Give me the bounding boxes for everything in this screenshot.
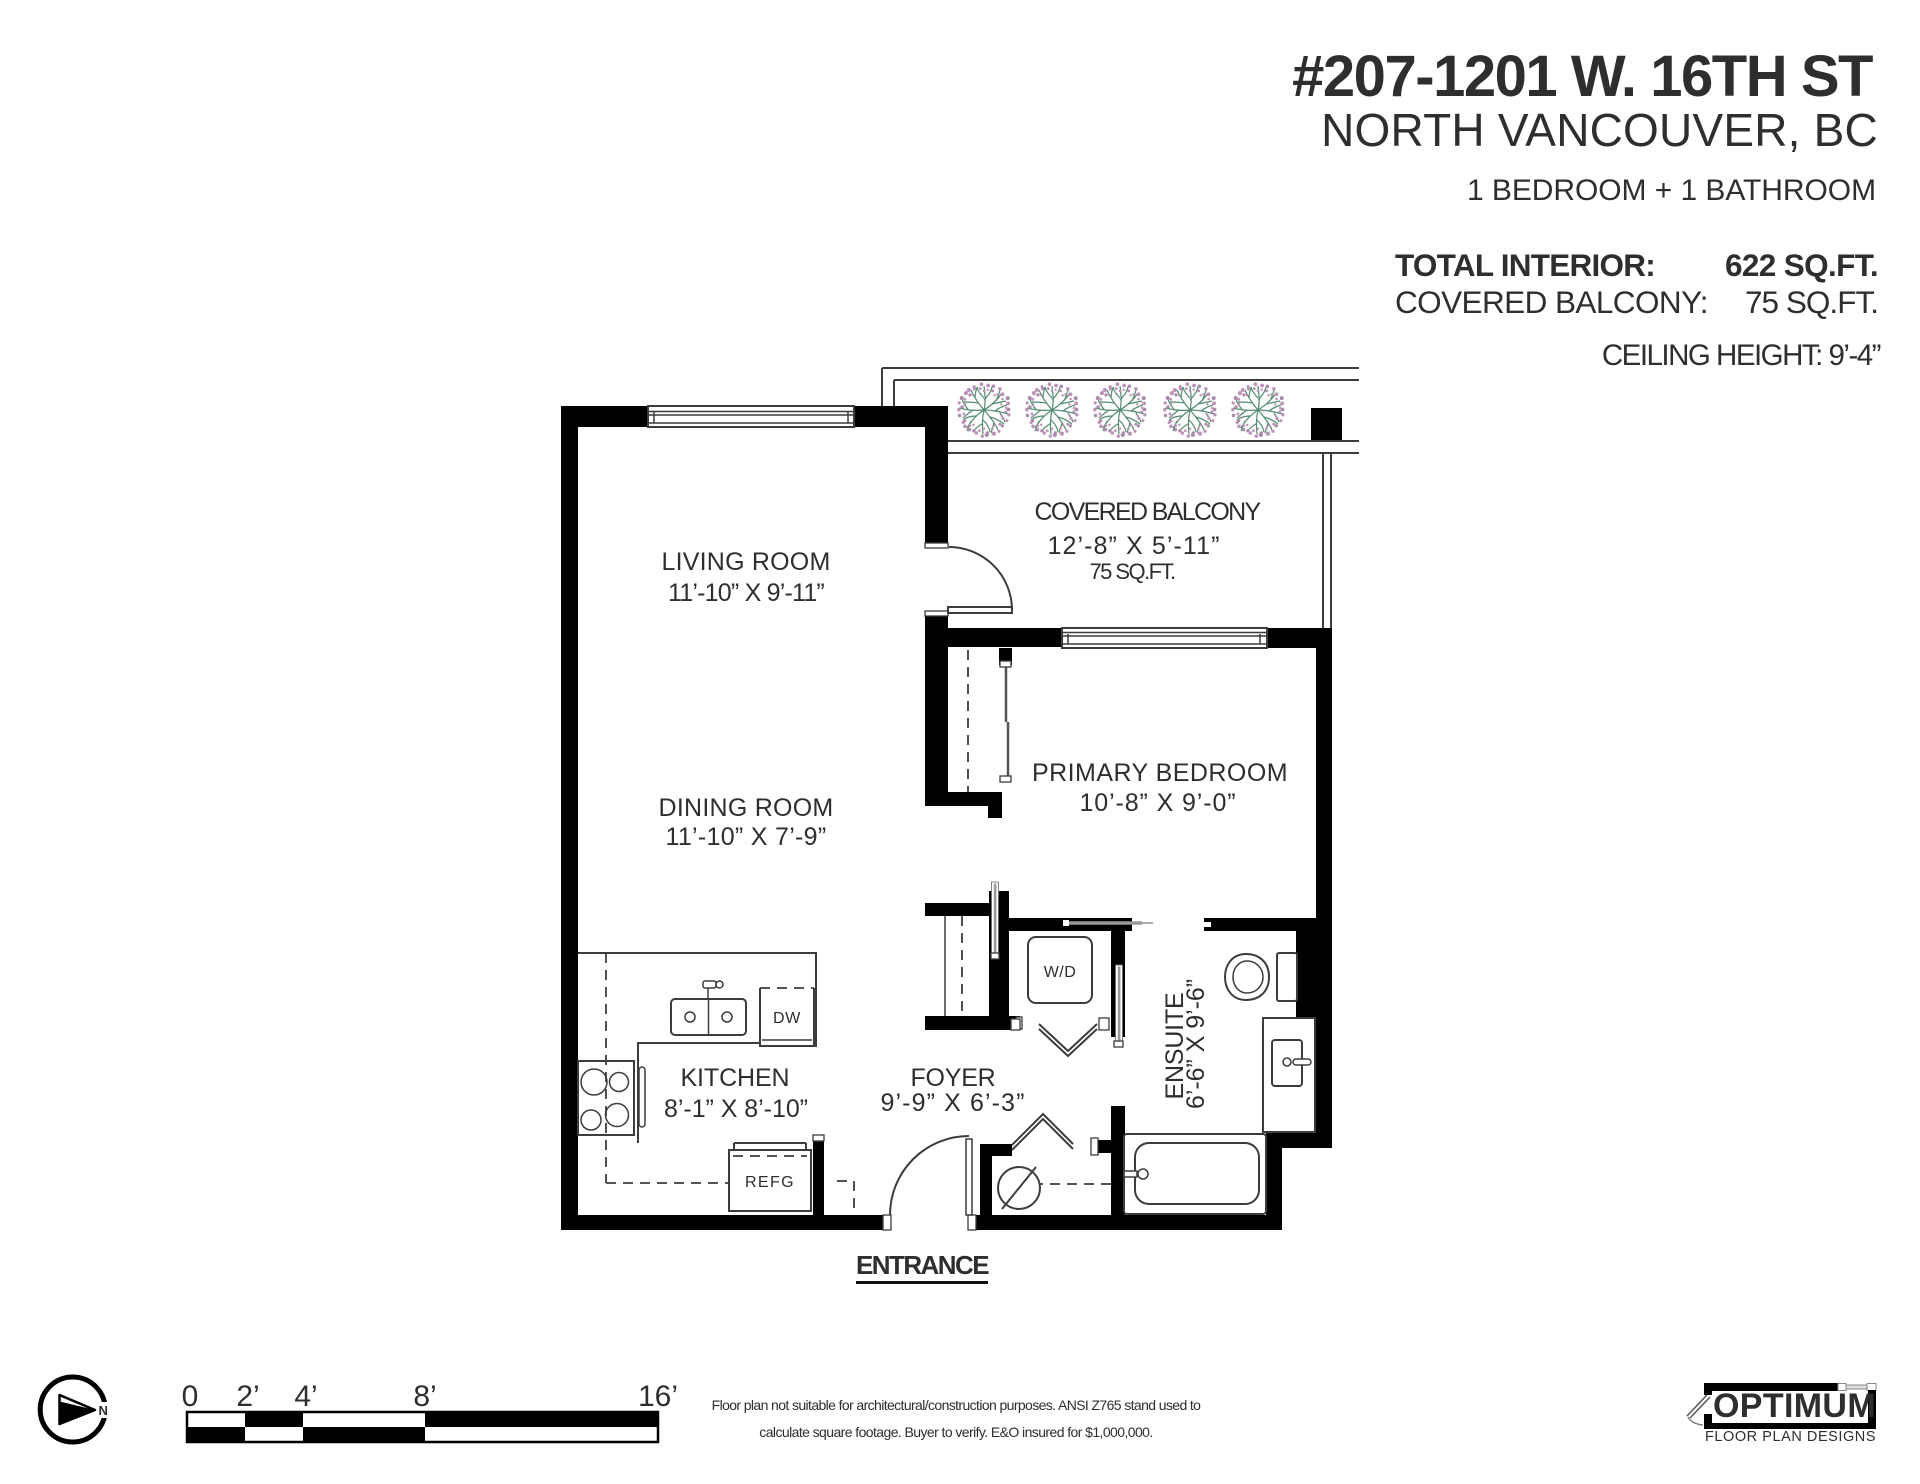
svg-text:#207-1201 W. 16TH ST: #207-1201 W. 16TH ST <box>1292 44 1873 109</box>
svg-text:8’: 8’ <box>413 1380 436 1413</box>
svg-text:KITCHEN: KITCHEN <box>680 1064 789 1092</box>
svg-text:2’: 2’ <box>236 1380 259 1413</box>
svg-text:N: N <box>99 1403 108 1418</box>
svg-text:ENTRANCE: ENTRANCE <box>856 1250 989 1280</box>
svg-text:DINING ROOM: DINING ROOM <box>659 794 834 822</box>
svg-text:LIVING ROOM: LIVING ROOM <box>662 548 831 576</box>
svg-text:DW: DW <box>773 1010 801 1027</box>
svg-text:FLOOR PLAN DESIGNS: FLOOR PLAN DESIGNS <box>1705 1429 1876 1445</box>
svg-text:calculate square footage. Buye: calculate square footage. Buyer to verif… <box>759 1424 1152 1440</box>
svg-text:16’: 16’ <box>638 1380 678 1413</box>
svg-text:11’-10” X 9’-11”: 11’-10” X 9’-11” <box>668 579 824 607</box>
svg-text:PRIMARY BEDROOM: PRIMARY BEDROOM <box>1032 759 1288 787</box>
svg-text:Floor plan not suitable for ar: Floor plan not suitable for architectura… <box>712 1397 1202 1413</box>
svg-text:0: 0 <box>182 1380 199 1413</box>
svg-text:4’: 4’ <box>294 1380 317 1413</box>
svg-text:75 SQ.FT.: 75 SQ.FT. <box>1745 284 1878 320</box>
svg-text:75 SQ.FT.: 75 SQ.FT. <box>1090 559 1175 584</box>
svg-text:1 BEDROOM + 1 BATHROOM: 1 BEDROOM + 1 BATHROOM <box>1467 174 1876 207</box>
svg-text:CEILING HEIGHT: 9’-4”: CEILING HEIGHT: 9’-4” <box>1602 339 1881 372</box>
svg-text:12’-8” X 5’-11”: 12’-8” X 5’-11” <box>1047 532 1220 560</box>
svg-text:6’-6” X 9’-6”: 6’-6” X 9’-6” <box>1182 979 1210 1109</box>
svg-text:FOYER: FOYER <box>910 1064 995 1092</box>
svg-text:8’-1” X 8’-10”: 8’-1” X 8’-10” <box>664 1095 808 1123</box>
svg-text:REFG: REFG <box>745 1174 795 1191</box>
svg-text:OPTIMUM: OPTIMUM <box>1713 1387 1876 1425</box>
svg-text:622 SQ.FT.: 622 SQ.FT. <box>1725 247 1878 283</box>
svg-text:COVERED BALCONY:: COVERED BALCONY: <box>1395 284 1708 320</box>
svg-text:11’-10” X 7’-9”: 11’-10” X 7’-9” <box>665 823 826 851</box>
svg-text:9’-9” X 6’-3”: 9’-9” X 6’-3” <box>880 1089 1025 1117</box>
svg-text:TOTAL INTERIOR:: TOTAL INTERIOR: <box>1395 247 1655 283</box>
svg-text:W/D: W/D <box>1044 964 1077 981</box>
svg-text:COVERED BALCONY: COVERED BALCONY <box>1034 498 1261 526</box>
svg-text:NORTH VANCOUVER, BC: NORTH VANCOUVER, BC <box>1321 104 1878 156</box>
svg-text:10’-8” X 9’-0”: 10’-8” X 9’-0” <box>1080 789 1237 817</box>
